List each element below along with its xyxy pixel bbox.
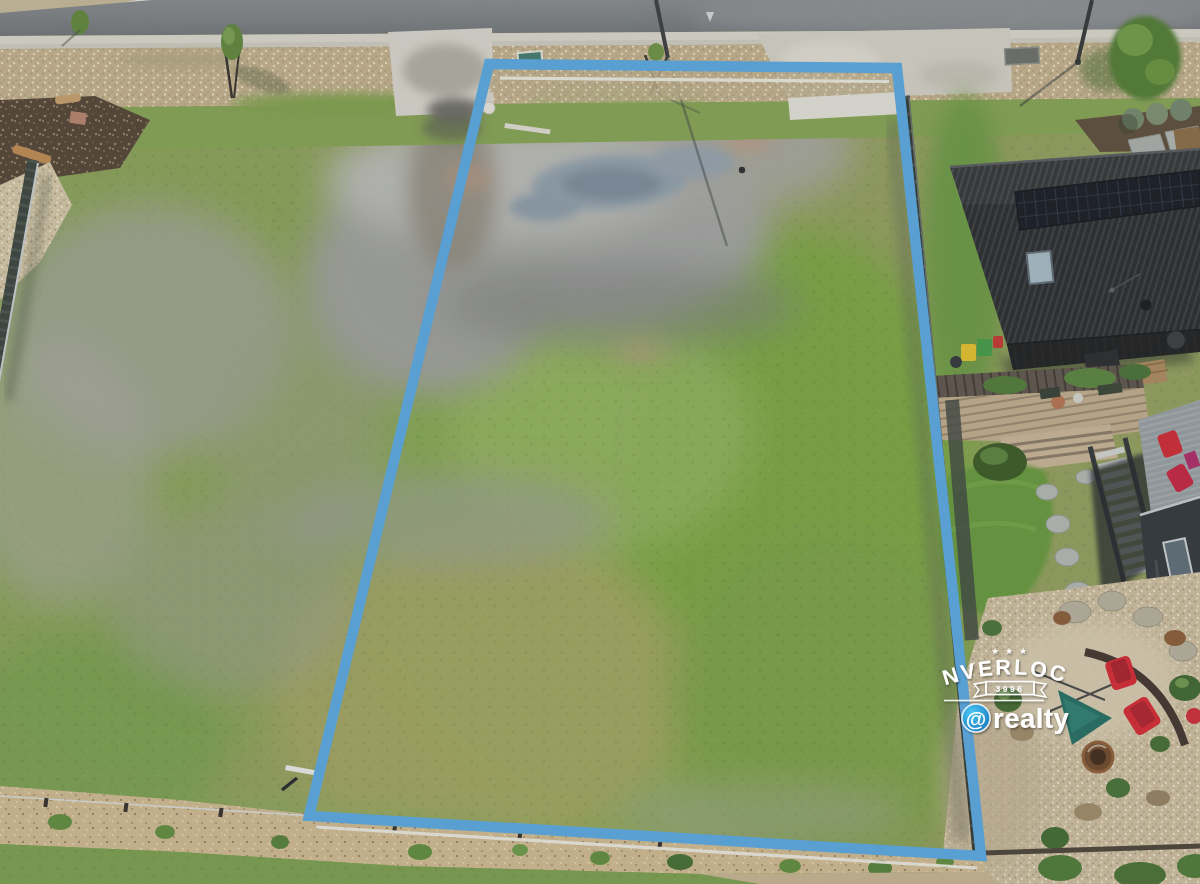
watermark-postcode: 3996 — [996, 684, 1025, 694]
watermark-stars: ★ ★ ★ — [991, 646, 1029, 656]
brand-at-symbol: @ — [966, 707, 986, 730]
aerial-photo: ★ ★ ★ INVERLOCH 3996 @ realty — [0, 0, 1200, 884]
watermark-brand: @ realty — [962, 703, 1070, 734]
aerial-photo-canvas: ★ ★ ★ INVERLOCH 3996 @ realty — [0, 0, 1200, 884]
brand-name: realty — [993, 703, 1070, 734]
photo-grain-light — [0, 0, 1200, 884]
